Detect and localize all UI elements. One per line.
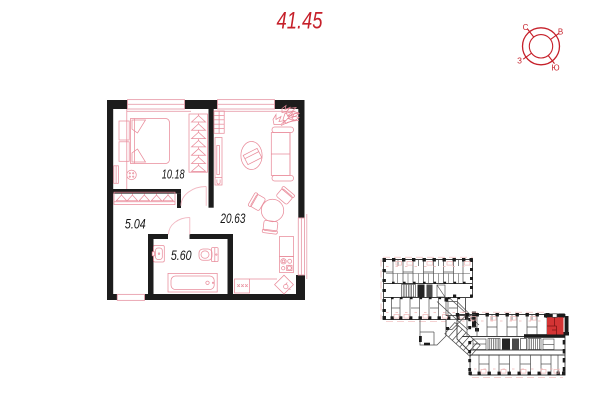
svg-text:В: В xyxy=(558,28,563,37)
svg-text:З: З xyxy=(517,57,522,66)
svg-text:Ю: Ю xyxy=(551,64,559,73)
svg-text:5.60: 5.60 xyxy=(171,248,192,264)
svg-text:20.63: 20.63 xyxy=(220,210,246,226)
svg-text:С: С xyxy=(523,23,529,32)
svg-text:5.04: 5.04 xyxy=(125,216,146,232)
svg-text:41.45: 41.45 xyxy=(277,6,324,34)
svg-text:10.18: 10.18 xyxy=(162,168,186,182)
